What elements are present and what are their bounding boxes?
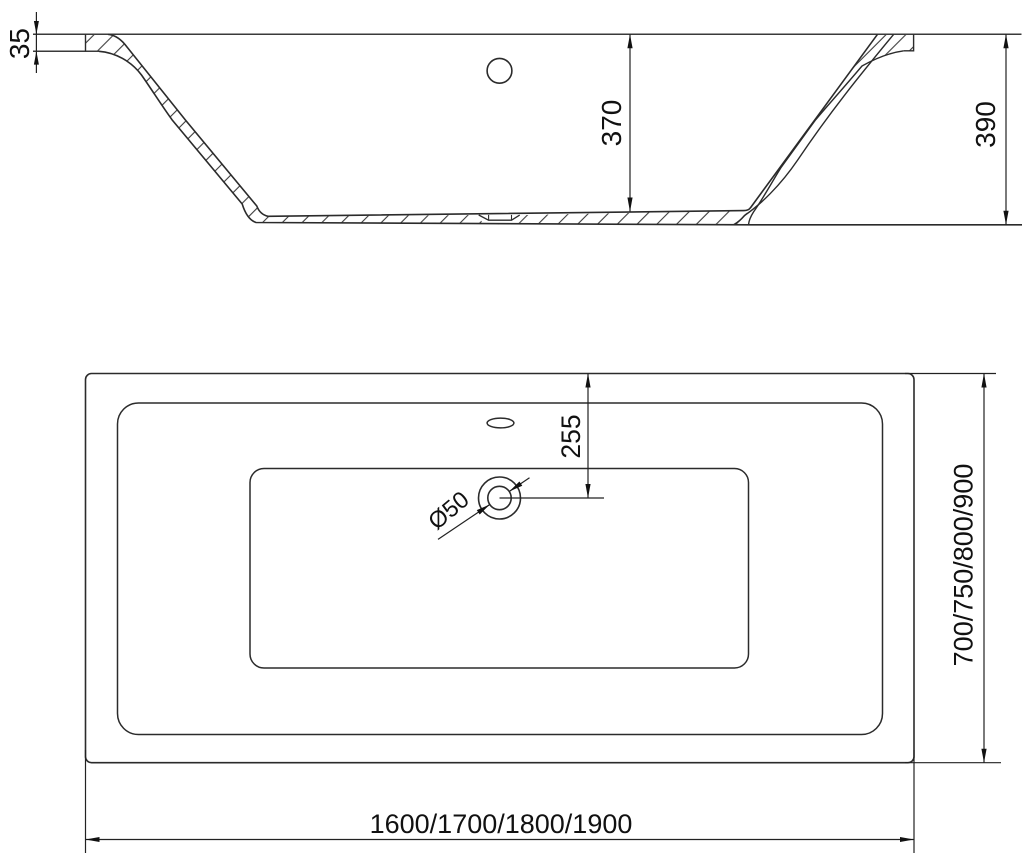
svg-text:1600/1700/1800/1900: 1600/1700/1800/1900	[370, 809, 633, 839]
svg-text:Ø50: Ø50	[423, 486, 474, 534]
svg-text:370: 370	[596, 100, 627, 147]
svg-text:700/750/800/900: 700/750/800/900	[949, 464, 979, 667]
svg-text:255: 255	[556, 414, 586, 458]
svg-text:35: 35	[4, 28, 35, 59]
svg-text:390: 390	[970, 101, 1001, 148]
